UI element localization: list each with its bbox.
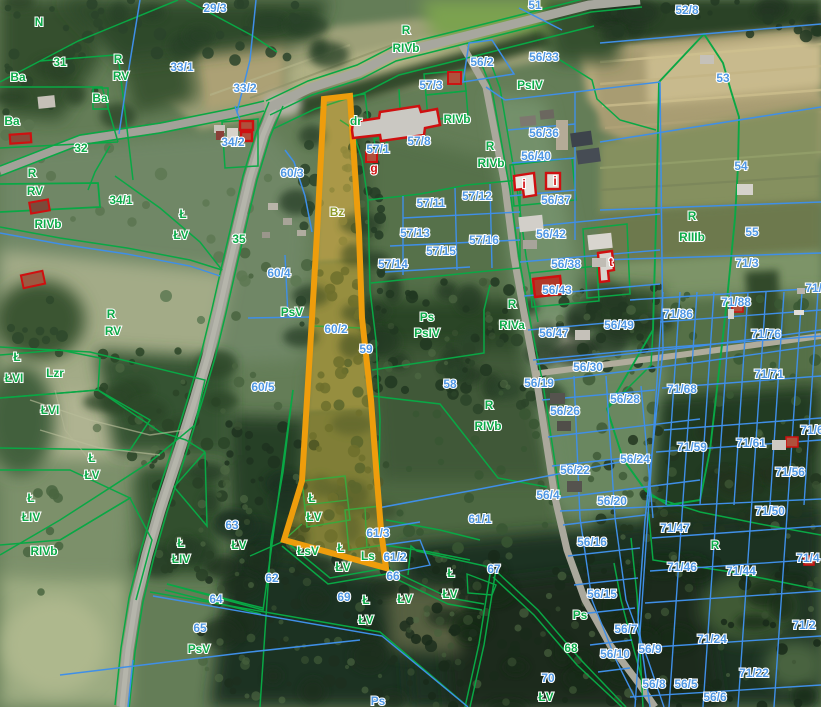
svg-text:PsV: PsV: [188, 642, 211, 656]
svg-text:56/43: 56/43: [542, 283, 572, 297]
svg-text:56/30: 56/30: [573, 360, 603, 374]
svg-text:56/47: 56/47: [539, 326, 569, 340]
svg-text:56/36: 56/36: [529, 126, 559, 140]
svg-text:Ps: Ps: [573, 608, 588, 622]
svg-text:64: 64: [209, 592, 223, 606]
svg-text:RIVb: RIVb: [443, 112, 470, 126]
svg-text:ŁVI: ŁVI: [41, 403, 60, 417]
svg-text:66: 66: [386, 569, 400, 583]
svg-text:RV: RV: [27, 184, 43, 198]
svg-text:35: 35: [232, 232, 246, 246]
svg-text:PsV: PsV: [281, 305, 304, 319]
svg-text:71/24: 71/24: [697, 632, 727, 646]
svg-text:34/2: 34/2: [221, 135, 245, 149]
svg-text:60/3: 60/3: [280, 166, 304, 180]
svg-text:71/3: 71/3: [735, 256, 759, 270]
svg-text:56/33: 56/33: [529, 50, 559, 64]
svg-text:33/2: 33/2: [233, 81, 257, 95]
svg-text:R: R: [485, 398, 494, 412]
svg-text:Ps: Ps: [371, 694, 386, 707]
svg-text:Ł: Ł: [177, 536, 184, 550]
svg-text:32: 32: [74, 141, 88, 155]
svg-text:71/6: 71/6: [800, 423, 821, 437]
svg-text:Ba: Ba: [4, 114, 20, 128]
svg-text:dr: dr: [350, 114, 362, 128]
svg-text:RIVb: RIVb: [477, 156, 504, 170]
svg-text:Ps: Ps: [420, 310, 435, 324]
svg-text:56/28: 56/28: [610, 392, 640, 406]
svg-text:R: R: [486, 139, 495, 153]
svg-text:71/86: 71/86: [663, 307, 693, 321]
svg-text:Ba: Ba: [10, 70, 26, 84]
svg-text:57/11: 57/11: [416, 196, 445, 210]
svg-text:59: 59: [359, 342, 373, 356]
svg-text:71/76: 71/76: [751, 327, 781, 341]
svg-text:Ł: Ł: [447, 566, 454, 580]
svg-text:56/8: 56/8: [642, 677, 666, 691]
svg-text:71/68: 71/68: [667, 382, 697, 396]
svg-text:R: R: [107, 307, 116, 321]
svg-text:ŁsV: ŁsV: [297, 544, 319, 558]
svg-text:ŁV: ŁV: [173, 228, 188, 242]
svg-text:57/1: 57/1: [366, 142, 390, 156]
svg-text:56/49: 56/49: [604, 318, 634, 332]
svg-text:N: N: [35, 15, 44, 29]
svg-text:52/8: 52/8: [675, 3, 699, 17]
svg-text:71/44: 71/44: [726, 564, 756, 578]
svg-text:71/50: 71/50: [755, 504, 785, 518]
svg-text:i: i: [522, 177, 525, 191]
svg-text:Ł: Ł: [179, 207, 186, 221]
svg-text:RIVb: RIVb: [34, 217, 61, 231]
svg-text:61/3: 61/3: [366, 526, 390, 540]
svg-text:63: 63: [225, 518, 239, 532]
svg-text:R: R: [28, 166, 37, 180]
svg-text:69: 69: [337, 590, 351, 604]
svg-text:ŁV: ŁV: [306, 510, 321, 524]
svg-text:56/40: 56/40: [521, 149, 551, 163]
svg-text:56/37: 56/37: [541, 193, 571, 207]
svg-text:RV: RV: [113, 69, 129, 83]
svg-text:Ł: Ł: [13, 350, 20, 364]
svg-text:R: R: [688, 209, 697, 223]
svg-text:Ł: Ł: [337, 541, 344, 555]
svg-text:71/88: 71/88: [721, 295, 751, 309]
svg-text:56/7: 56/7: [614, 622, 638, 636]
svg-text:68: 68: [564, 641, 578, 655]
svg-text:RIVb: RIVb: [474, 419, 501, 433]
svg-text:56/4: 56/4: [536, 488, 560, 502]
svg-text:71/46: 71/46: [667, 560, 697, 574]
svg-text:60/2: 60/2: [324, 322, 348, 336]
svg-text:Ls: Ls: [361, 549, 375, 563]
svg-text:62: 62: [265, 571, 279, 585]
svg-text:56/6: 56/6: [703, 690, 727, 704]
svg-text:65: 65: [193, 621, 207, 635]
svg-text:57/8: 57/8: [407, 134, 431, 148]
svg-text:Bz: Bz: [330, 205, 345, 219]
svg-text:57/15: 57/15: [426, 244, 456, 258]
svg-text:54: 54: [734, 159, 748, 173]
svg-text:71/56: 71/56: [775, 465, 805, 479]
svg-text:R: R: [711, 538, 720, 552]
svg-text:56/5: 56/5: [674, 677, 698, 691]
svg-text:33/1: 33/1: [170, 60, 194, 74]
svg-text:Ł: Ł: [362, 593, 369, 607]
svg-text:ŁV: ŁV: [335, 560, 350, 574]
svg-text:57/12: 57/12: [462, 189, 492, 203]
svg-text:51: 51: [528, 0, 542, 12]
svg-text:R: R: [508, 297, 517, 311]
svg-text:56/15: 56/15: [587, 587, 617, 601]
svg-text:i: i: [553, 174, 556, 188]
svg-text:71/4: 71/4: [805, 281, 821, 295]
svg-text:56/22: 56/22: [560, 463, 590, 477]
svg-text:56/38: 56/38: [551, 257, 581, 271]
svg-text:56/42: 56/42: [536, 227, 566, 241]
svg-text:58: 58: [443, 377, 457, 391]
svg-text:ŁVI: ŁVI: [5, 371, 24, 385]
svg-text:71/71: 71/71: [754, 367, 784, 381]
svg-text:PsIV: PsIV: [517, 78, 543, 92]
svg-text:56/19: 56/19: [524, 376, 554, 390]
svg-text:RIIIb: RIIIb: [679, 230, 705, 244]
svg-text:61/2: 61/2: [383, 550, 407, 564]
svg-text:RV: RV: [105, 324, 121, 338]
svg-text:71/22: 71/22: [739, 666, 769, 680]
svg-text:57/3: 57/3: [419, 78, 443, 92]
svg-text:Ł: Ł: [308, 491, 315, 505]
svg-text:t: t: [609, 255, 613, 269]
svg-text:60/4: 60/4: [267, 266, 291, 280]
svg-text:71/61: 71/61: [736, 436, 766, 450]
svg-text:56/10: 56/10: [600, 647, 630, 661]
svg-text:71/4: 71/4: [796, 551, 820, 565]
svg-text:71/47: 71/47: [660, 521, 690, 535]
svg-text:55: 55: [745, 225, 759, 239]
svg-text:ŁIV: ŁIV: [172, 552, 191, 566]
svg-text:Ł: Ł: [27, 491, 34, 505]
svg-text:ŁV: ŁV: [231, 538, 246, 552]
svg-text:70: 70: [541, 671, 555, 685]
svg-text:ŁV: ŁV: [84, 468, 99, 482]
svg-text:R: R: [402, 23, 411, 37]
svg-text:RIVb: RIVb: [392, 41, 419, 55]
svg-text:67: 67: [487, 562, 501, 576]
svg-text:56/2: 56/2: [470, 55, 494, 69]
svg-text:ŁV: ŁV: [538, 690, 553, 704]
svg-text:ŁV: ŁV: [358, 613, 373, 627]
svg-text:53: 53: [716, 71, 730, 85]
svg-text:ŁV: ŁV: [397, 592, 412, 606]
svg-text:56/20: 56/20: [597, 494, 627, 508]
svg-text:Ba: Ba: [92, 91, 108, 105]
svg-text:Ł: Ł: [88, 451, 95, 465]
svg-text:57/16: 57/16: [469, 233, 499, 247]
svg-text:56/9: 56/9: [638, 642, 662, 656]
svg-text:RIVb: RIVb: [30, 544, 57, 558]
svg-text:ŁIV: ŁIV: [22, 510, 41, 524]
svg-text:57/13: 57/13: [400, 226, 430, 240]
svg-text:71/2: 71/2: [792, 618, 816, 632]
svg-text:31: 31: [53, 55, 67, 69]
svg-text:71/59: 71/59: [677, 440, 707, 454]
svg-text:34/1: 34/1: [109, 193, 133, 207]
svg-text:56/24: 56/24: [620, 452, 650, 466]
svg-text:PsIV: PsIV: [414, 326, 440, 340]
svg-text:29/3: 29/3: [203, 1, 227, 15]
svg-text:RIVa: RIVa: [499, 318, 525, 332]
svg-text:Lzr: Lzr: [46, 366, 64, 380]
svg-text:60/5: 60/5: [251, 380, 275, 394]
svg-text:56/16: 56/16: [577, 535, 607, 549]
svg-text:ŁV: ŁV: [442, 587, 457, 601]
svg-text:g: g: [370, 161, 377, 175]
svg-text:R: R: [114, 52, 123, 66]
svg-text:61/1: 61/1: [468, 512, 492, 526]
svg-text:56/26: 56/26: [550, 404, 580, 418]
svg-text:57/14: 57/14: [378, 257, 408, 271]
